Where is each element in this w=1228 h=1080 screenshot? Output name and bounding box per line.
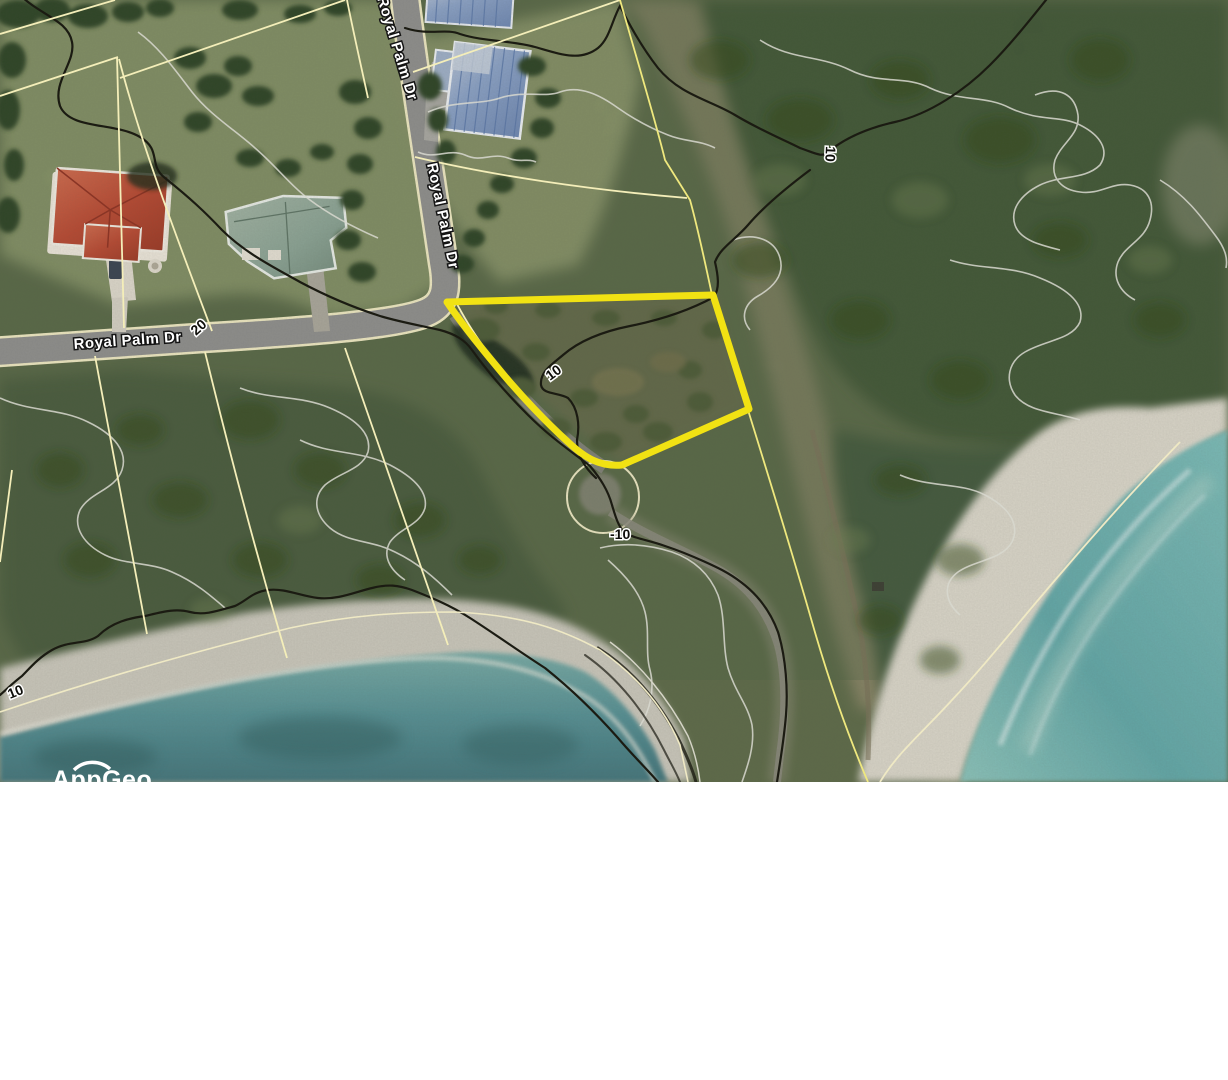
contour-label-10-culdesac: -10 — [610, 526, 630, 542]
screenshot-root: Royal Palm Dr Royal Palm Dr Royal Palm D… — [0, 0, 1228, 1080]
blank-area — [0, 782, 1228, 1080]
satellite-map[interactable]: Royal Palm Dr Royal Palm Dr Royal Palm D… — [0, 0, 1228, 782]
watermark-appgeo-text: AppGeo — [52, 766, 152, 782]
watermark-logo: AppGeo — [52, 762, 152, 782]
map-viewport[interactable]: Royal Palm Dr Royal Palm Dr Royal Palm D… — [0, 0, 1228, 782]
contour-label-10-northeast: 10 — [822, 146, 839, 163]
